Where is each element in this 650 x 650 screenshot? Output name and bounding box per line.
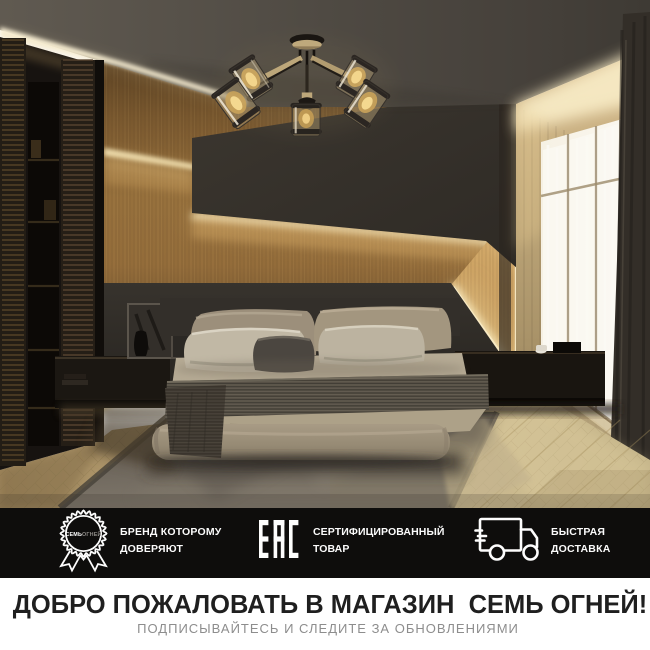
svg-text:СЕМЬОГНЕЙ: СЕМЬОГНЕЙ xyxy=(65,530,101,538)
